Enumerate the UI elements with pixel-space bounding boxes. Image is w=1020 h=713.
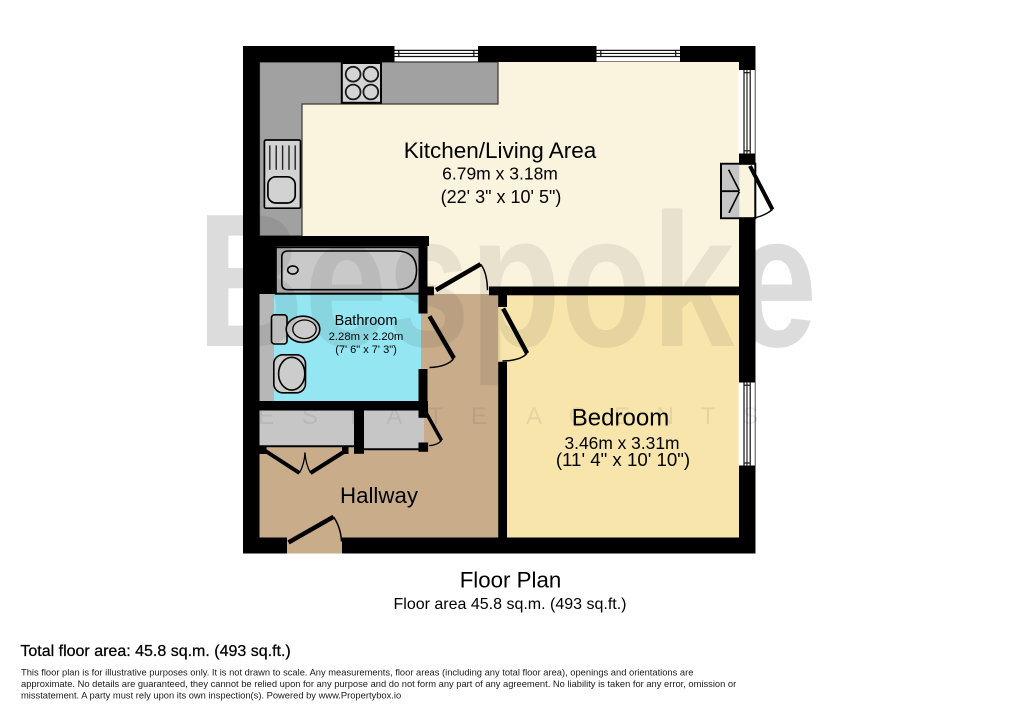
svg-text:This floor plan is for illustr: This floor plan is for illustrative purp…: [21, 668, 693, 678]
svg-text:Hallway: Hallway: [340, 483, 419, 508]
svg-text:(11' 4" x 10' 10"): (11' 4" x 10' 10"): [556, 449, 690, 470]
svg-text:Bespoke: Bespoke: [197, 175, 817, 387]
svg-text:approximate. No details are gu: approximate. No details are guaranteed, …: [21, 679, 736, 689]
svg-text:misstatement. A party must rel: misstatement. A party must rely upon its…: [21, 691, 401, 701]
svg-text:Kitchen/Living Area: Kitchen/Living Area: [404, 138, 597, 163]
svg-text:Total floor area: 45.8 sq.m. (: Total floor area: 45.8 sq.m. (493 sq.ft.…: [20, 643, 290, 660]
svg-text:Floor Plan: Floor Plan: [460, 568, 562, 593]
svg-text:Floor area 45.8 sq.m. (493 sq.: Floor area 45.8 sq.m. (493 sq.ft.): [394, 596, 627, 613]
